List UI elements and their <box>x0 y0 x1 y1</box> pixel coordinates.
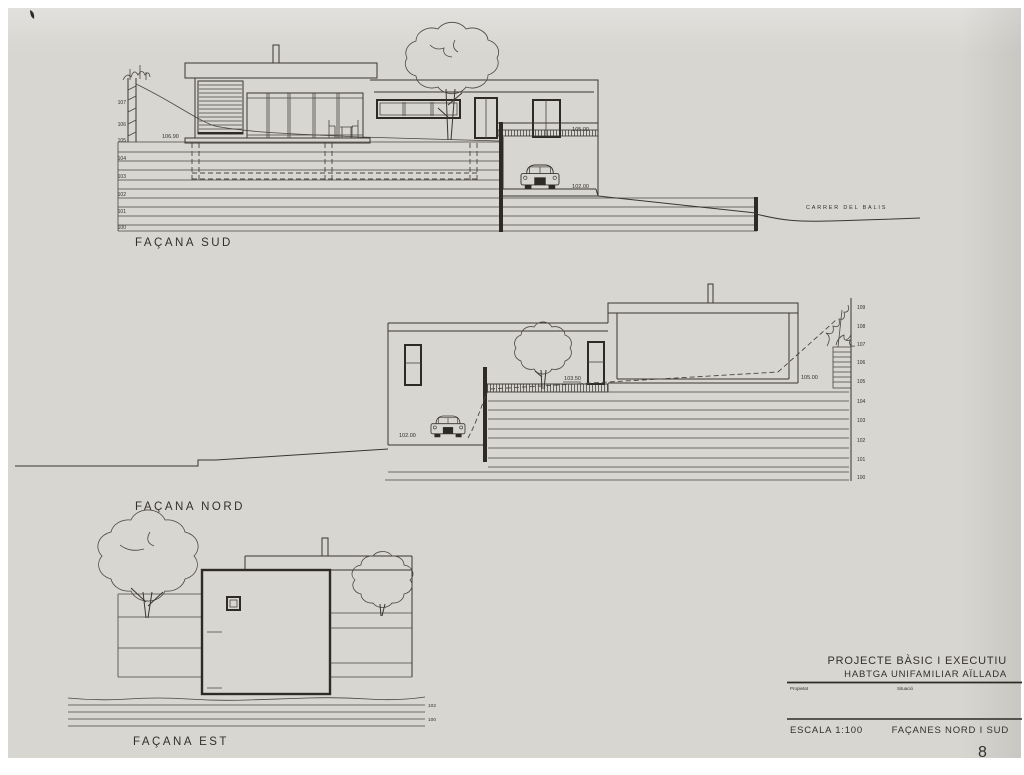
level-label: 101 <box>857 457 866 463</box>
title-field-left: Propietat <box>790 686 809 691</box>
scale-label: ESCALA 1:100 <box>790 725 863 736</box>
level-label: 104 <box>857 399 866 405</box>
level-label: 104 <box>118 156 127 162</box>
small-window <box>227 597 240 610</box>
title-field-right: Situació <box>897 686 914 691</box>
sheet-title: FAÇANES NORD I SUD <box>892 725 1009 736</box>
sheet-number: 8 <box>978 744 987 761</box>
level-label: 105 <box>118 138 127 144</box>
level-label: 103 <box>118 174 127 180</box>
level-label: 108 <box>857 324 866 330</box>
post <box>483 367 487 462</box>
post <box>499 122 503 232</box>
spot-elevation: 105.00 <box>801 375 818 381</box>
scan-artifact <box>30 10 34 19</box>
drawing-caption-sud: FAÇANA SUD <box>135 237 233 249</box>
ground-level-label: 100 <box>428 717 436 723</box>
chimney <box>708 284 713 303</box>
tree-icon <box>405 22 498 140</box>
window <box>588 342 604 384</box>
tree-icon <box>98 510 198 618</box>
elevations-svg: CARRER DEL BALIS 107 106 105 104 103 102… <box>0 0 1024 775</box>
spot-elevation: 103.50 <box>564 376 581 382</box>
car-icon <box>521 165 559 189</box>
title-block: PROJECTE BÀSIC I EXECUTIU HABTGA UNIFAMI… <box>787 654 1022 761</box>
car-icon <box>431 416 465 437</box>
chimney <box>273 45 279 63</box>
chimney <box>322 538 328 556</box>
street-label: CARRER DEL BALIS <box>806 205 887 211</box>
level-label: 106 <box>857 360 866 366</box>
level-label: 103 <box>857 418 866 424</box>
level-label: 101 <box>118 209 127 215</box>
project-title-line1: PROJECTE BÀSIC I EXECUTIU <box>827 654 1007 667</box>
window <box>405 345 421 385</box>
sud-level-scale: 107 106 105 104 103 102 101 100 <box>118 100 127 231</box>
level-label: 102 <box>857 438 866 444</box>
ground-level-label: 102 <box>428 703 436 709</box>
spot-elevation: 102.00 <box>572 184 589 190</box>
level-label: 109 <box>857 305 866 311</box>
drawing-caption-nord: FAÇANA NORD <box>135 501 245 513</box>
level-label: 100 <box>118 225 127 231</box>
shrub-icon <box>123 65 150 80</box>
level-label: 105 <box>857 379 866 385</box>
level-label: 107 <box>118 100 127 106</box>
tree-icon <box>352 552 413 616</box>
scanned-drawing-sheet: CARRER DEL BALIS 107 106 105 104 103 102… <box>0 0 1024 775</box>
level-label: 107 <box>857 342 866 348</box>
level-label: 102 <box>118 192 127 198</box>
spot-elevation: 106.90 <box>162 134 179 140</box>
drawing-caption-est: FAÇANA EST <box>133 736 229 748</box>
project-title-line2: HABTGA UNIFAMILIAR AÏLLADA <box>844 669 1007 680</box>
tree-icon <box>515 322 572 389</box>
facana-sud-elevation: CARRER DEL BALIS 107 106 105 104 103 102… <box>118 22 920 249</box>
nord-level-scale: 109 108 107 106 105 104 103 102 101 100 <box>857 305 866 481</box>
louver-panel <box>198 81 243 134</box>
facana-nord-elevation: 109 108 107 106 105 104 103 102 101 100 … <box>15 284 866 513</box>
spot-elevation: 105.00 <box>572 127 589 133</box>
upper-volume <box>608 284 798 383</box>
glass-wall <box>247 93 363 138</box>
facana-est-elevation: 102 100 FAÇANA EST <box>68 510 436 748</box>
level-label: 106 <box>118 122 127 128</box>
spot-elevation: 102.00 <box>399 433 416 439</box>
level-label: 100 <box>857 475 866 481</box>
